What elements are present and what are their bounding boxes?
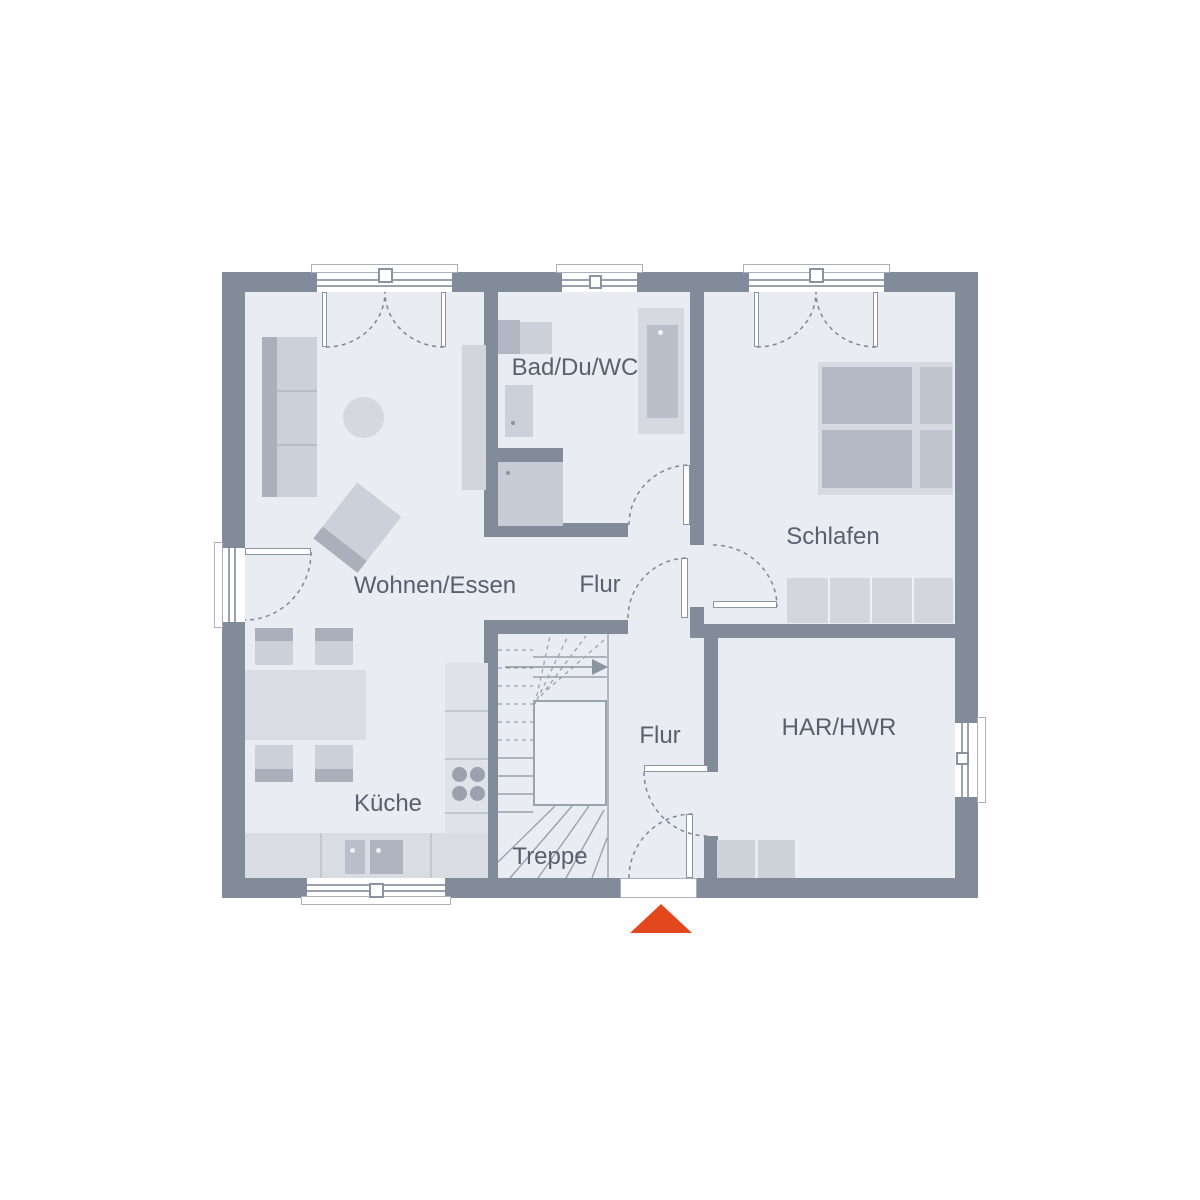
room-label-kueche: Küche [338,790,438,818]
arc-terrace-door [245,552,311,620]
arc-bad-door [629,465,690,525]
stair-treads-above-cut [498,636,604,740]
room-label-bad-du-wc: Bad/Du/WC [495,354,655,382]
room-label-schlafen: Schlafen [773,523,893,551]
room-label-flur-unten: Flur [620,722,700,750]
room-label-treppe: Treppe [500,843,600,871]
arc-window-wohnen-right [385,292,444,347]
entrance-marker-triangle [630,904,692,933]
room-label-flur-mitte: Flur [560,571,640,599]
stair-arrow-head [592,659,608,675]
arc-window-wohnen-left [326,292,385,347]
arc-entrance-door [629,814,693,878]
arc-hwr-door [644,772,708,836]
stair-direction-arrow [505,659,608,675]
stair-treads [498,634,608,878]
arc-window-schlafen-left [757,292,816,347]
plan-linework [0,0,1200,1200]
arc-schlafen-door [713,545,777,607]
room-label-wohnen-essen: Wohnen/Essen [335,572,535,600]
floor-plan-canvas: Wohnen/Essen Küche Bad/Du/WC Flur Schlaf… [0,0,1200,1200]
arc-window-schlafen-right [816,292,876,347]
room-label-har-hwr: HAR/HWR [779,714,899,742]
